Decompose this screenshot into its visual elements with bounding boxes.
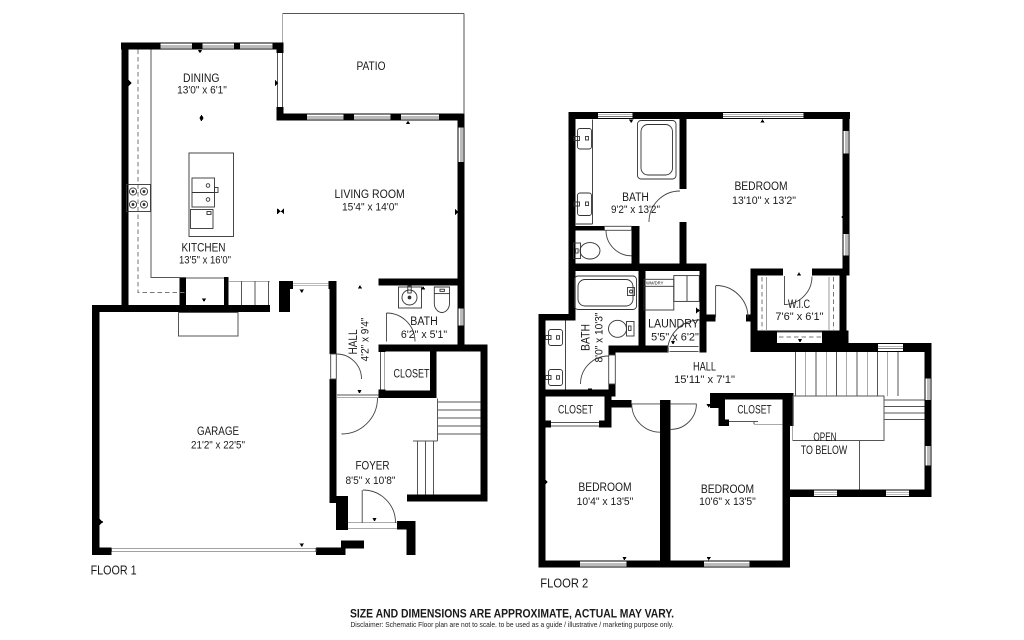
svg-text:WM/DRY: WM/DRY: [646, 280, 664, 285]
svg-text:13'0" x 6'1": 13'0" x 6'1": [177, 85, 227, 97]
svg-text:Disclaimer: Schematic Floor pl: Disclaimer: Schematic Floor plan are not…: [351, 620, 674, 629]
svg-text:FLOOR 1: FLOOR 1: [91, 563, 137, 578]
svg-text:CLOSET: CLOSET: [737, 403, 772, 417]
svg-text:GARAGE: GARAGE: [197, 424, 239, 438]
svg-text:PATIO: PATIO: [357, 59, 386, 73]
svg-text:CLOSET: CLOSET: [558, 403, 593, 417]
svg-text:LIVING ROOM: LIVING ROOM: [335, 187, 405, 201]
svg-text:W.I.C: W.I.C: [788, 297, 810, 311]
svg-text:13'10" x 13'2": 13'10" x 13'2": [732, 195, 796, 207]
svg-text:BEDROOM: BEDROOM: [701, 482, 754, 496]
svg-text:4'2" x 9'4": 4'2" x 9'4": [360, 318, 372, 362]
svg-text:10'6" x 13'5": 10'6" x 13'5": [699, 496, 756, 508]
svg-text:9'2" x 13'2": 9'2" x 13'2": [611, 204, 660, 216]
svg-text:10'4" x 13'5": 10'4" x 13'5": [577, 496, 634, 508]
svg-text:BEDROOM: BEDROOM: [578, 480, 631, 494]
svg-text:BATH: BATH: [622, 190, 649, 204]
svg-text:BATH: BATH: [579, 324, 593, 351]
svg-text:8'5" x 10'8": 8'5" x 10'8": [346, 475, 396, 487]
svg-text:15'11" x 7'1": 15'11" x 7'1": [674, 374, 735, 386]
svg-text:FOYER: FOYER: [356, 459, 390, 473]
svg-text:15'4" x 14'0": 15'4" x 14'0": [342, 202, 398, 214]
svg-text:13'5" x 16'0": 13'5" x 16'0": [179, 254, 231, 266]
svg-text:OPEN: OPEN: [813, 430, 836, 444]
svg-text:DINING: DINING: [183, 71, 220, 85]
svg-text:TO BELOW: TO BELOW: [801, 443, 848, 457]
svg-text:FLOOR 2: FLOOR 2: [540, 576, 588, 591]
svg-text:SIZE AND DIMENSIONS ARE APPROX: SIZE AND DIMENSIONS ARE APPROXIMATE, ACT…: [350, 606, 674, 620]
svg-text:21'2" x 22'5": 21'2" x 22'5": [191, 440, 245, 452]
svg-text:HALL: HALL: [346, 329, 360, 354]
svg-text:5'5" x 6'2": 5'5" x 6'2": [651, 332, 699, 344]
svg-text:KITCHEN: KITCHEN: [182, 241, 226, 255]
svg-text:LAUNDRY: LAUNDRY: [648, 317, 699, 331]
svg-text:6'2" x 5'1": 6'2" x 5'1": [401, 329, 447, 341]
svg-text:BEDROOM: BEDROOM: [734, 179, 787, 193]
svg-text:7'6" x 6'1": 7'6" x 6'1": [775, 311, 823, 323]
svg-text:CLOSET: CLOSET: [394, 366, 430, 380]
svg-text:BATH: BATH: [410, 314, 438, 328]
svg-text:8'0" x 10'3": 8'0" x 10'3": [594, 312, 606, 362]
svg-text:HALL: HALL: [693, 360, 716, 374]
